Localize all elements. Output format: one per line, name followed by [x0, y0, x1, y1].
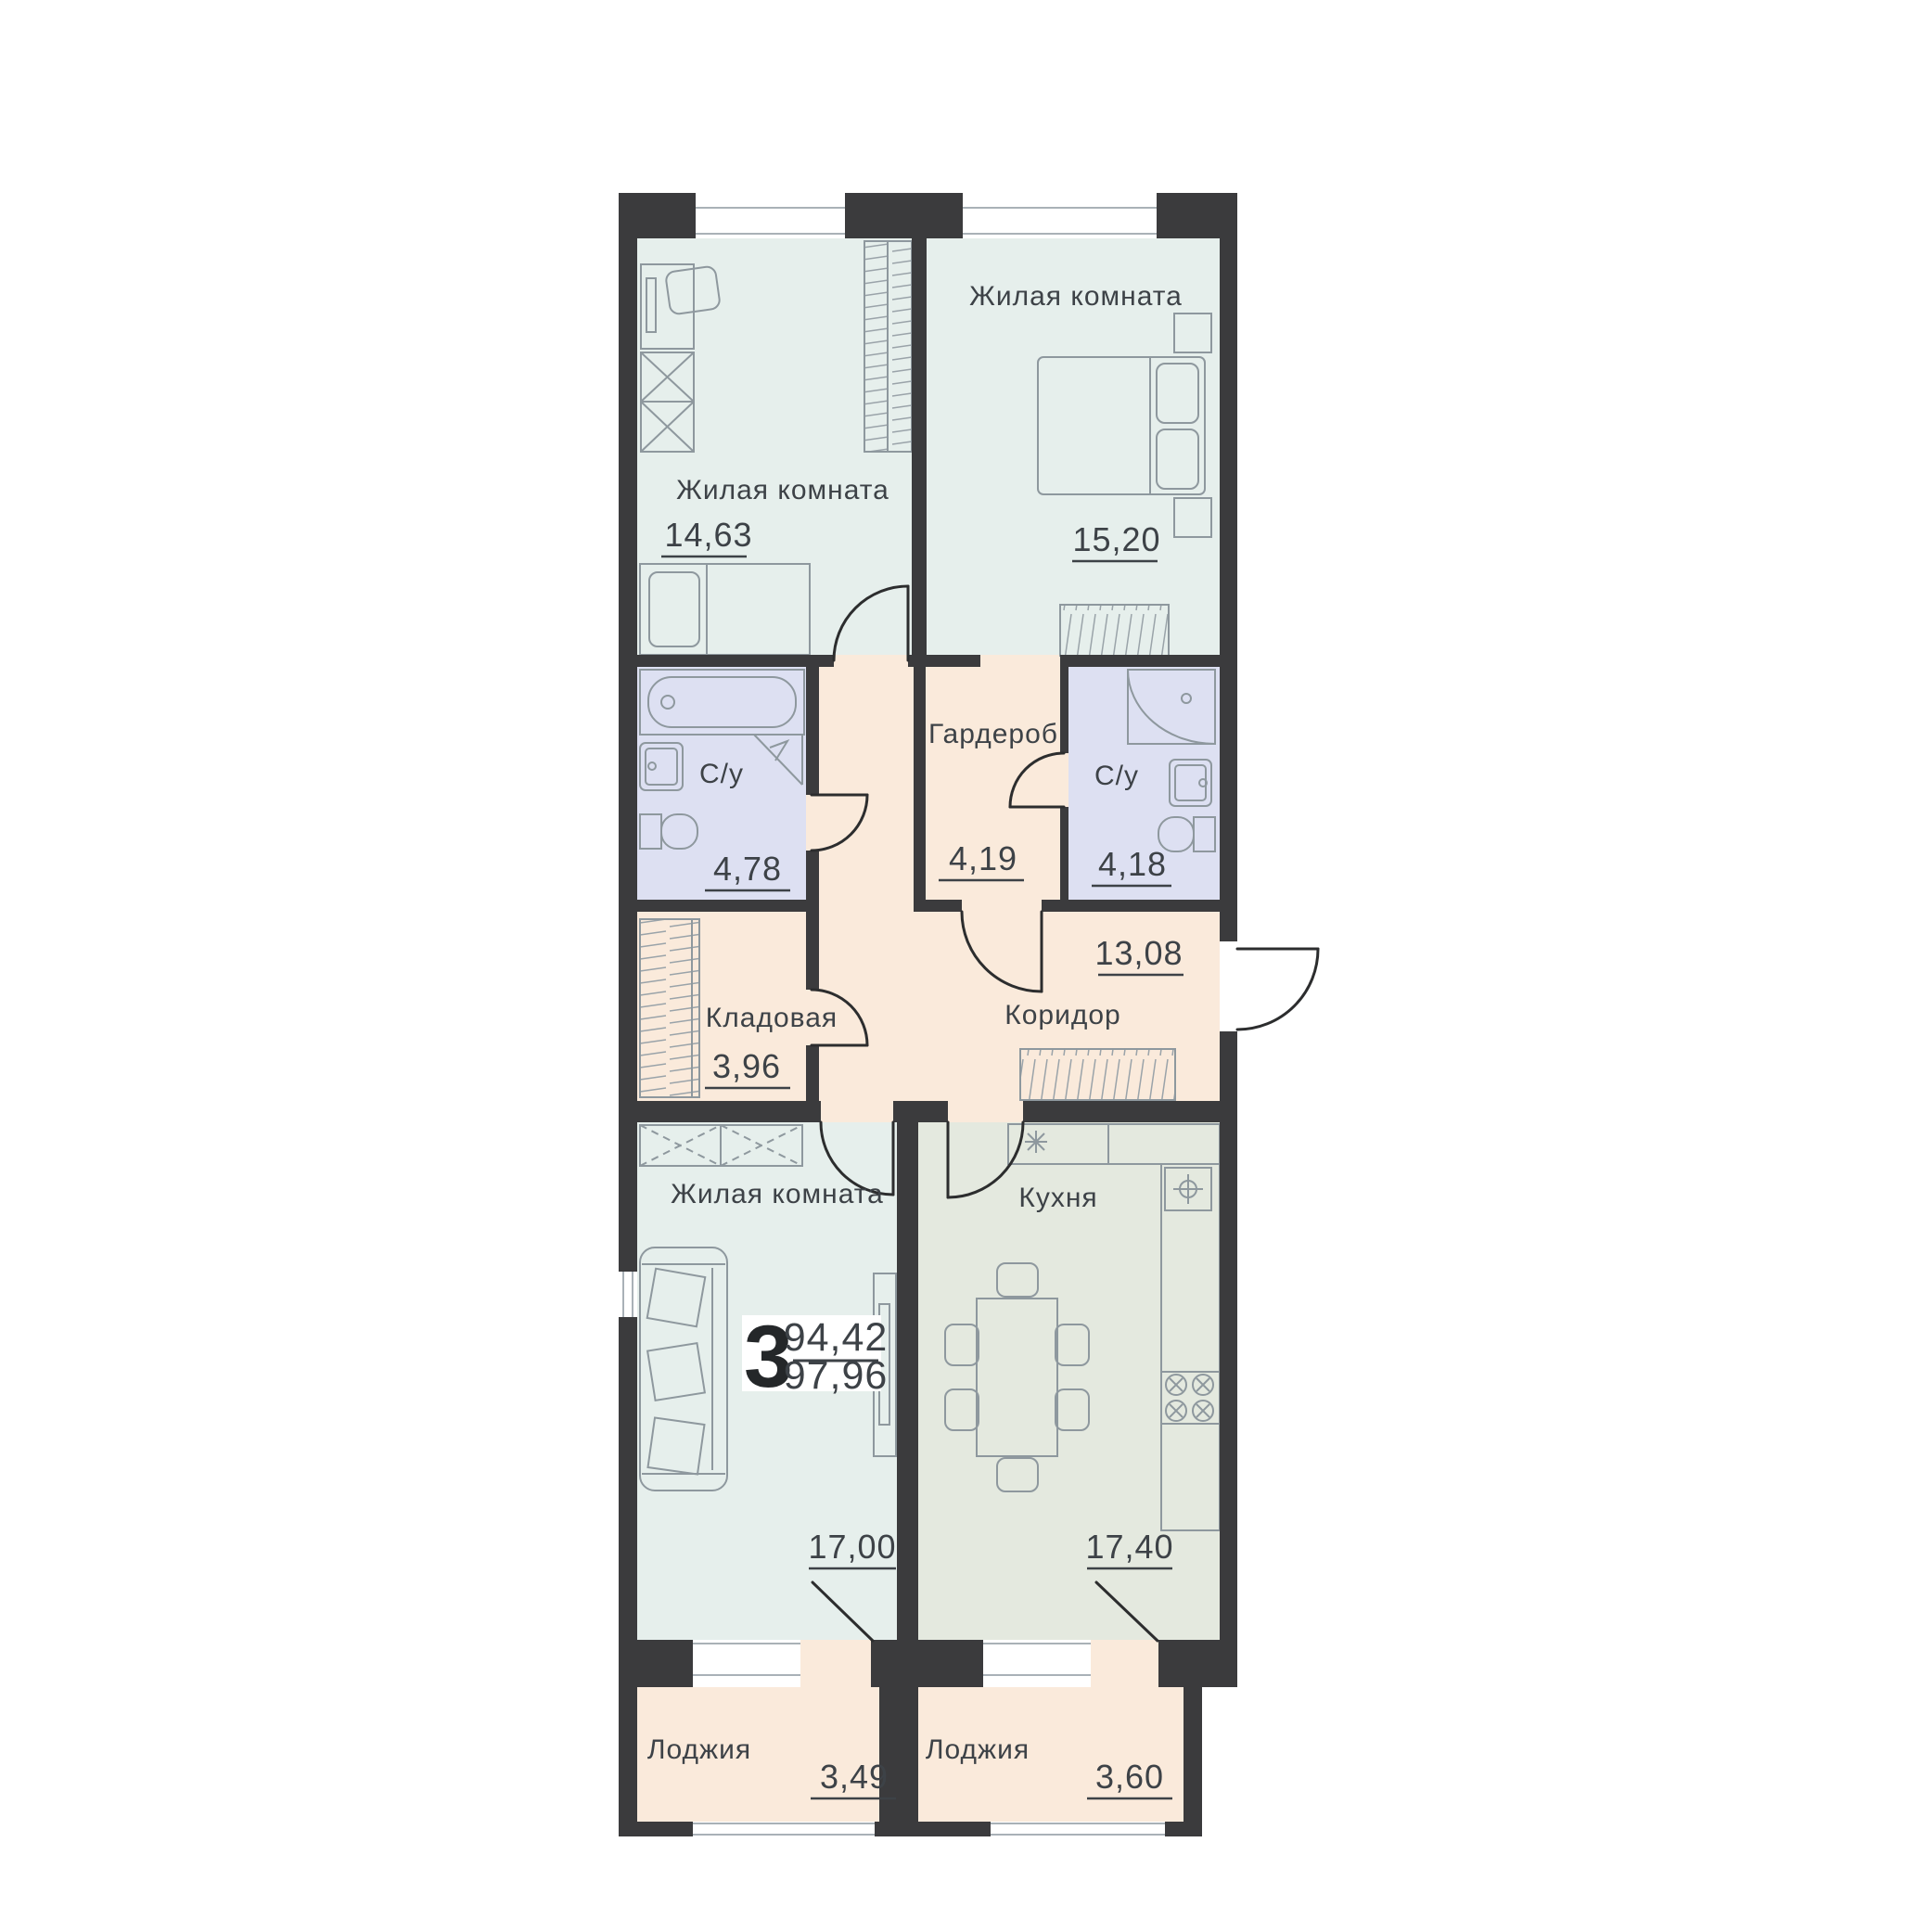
- wall-segment: [1060, 655, 1220, 667]
- room-area: 14,63: [664, 516, 752, 554]
- wall-segment: [806, 1045, 819, 1101]
- window: [983, 1640, 1091, 1687]
- room-label: Гардероб: [928, 719, 1058, 749]
- wall-segment: [845, 193, 963, 238]
- wall-segment: [637, 655, 834, 667]
- room-area: 3,49: [820, 1758, 889, 1796]
- opening-bath1: [806, 795, 819, 851]
- window: [619, 1272, 637, 1317]
- loggia-window: [991, 1822, 1165, 1836]
- floor-plan-page: Жилая комната 14,63 Жилая комната 15,20 …: [0, 0, 1932, 1932]
- room-label: С/у: [1094, 761, 1139, 791]
- floor-plan-drawing: Жилая комната 14,63 Жилая комната 15,20 …: [0, 0, 1932, 1932]
- window: [693, 1640, 800, 1687]
- wardrobe-hatched-icon: [864, 241, 912, 452]
- wall-segment: [1220, 1031, 1237, 1640]
- area-lower: 97,96: [784, 1353, 889, 1398]
- wall-segment: [1042, 900, 1220, 912]
- wall-segment: [912, 238, 927, 667]
- wall-segment: [619, 1640, 693, 1687]
- wall-segment: [1184, 1687, 1202, 1836]
- wall-segment: [897, 1122, 918, 1640]
- loggia-window: [693, 1822, 875, 1836]
- wall-segment: [1060, 807, 1068, 904]
- wall-segment: [637, 900, 819, 912]
- wall-segment: [914, 667, 926, 912]
- room-label: Кладовая: [706, 1003, 838, 1033]
- room-label: Кухня: [1018, 1183, 1097, 1213]
- wall-segment: [875, 1822, 918, 1836]
- room-area: 3,96: [712, 1047, 781, 1085]
- room-label: Жилая комната: [969, 281, 1183, 312]
- wall-segment: [619, 193, 696, 238]
- wall-segment: [871, 1640, 983, 1687]
- window: [696, 193, 845, 238]
- room-area: 17,40: [1085, 1528, 1173, 1566]
- wall-segment: [1158, 1640, 1237, 1687]
- hall-wardrobe-hatched-icon: [1020, 1049, 1175, 1100]
- room-area: 17,00: [808, 1528, 896, 1566]
- wall-segment: [1165, 1822, 1202, 1836]
- room-label: Лоджия: [926, 1734, 1030, 1765]
- room-area: 4,18: [1098, 845, 1167, 883]
- room-label: Лоджия: [647, 1734, 751, 1765]
- wall-segment: [619, 1101, 821, 1122]
- room-area: 4,19: [949, 839, 1017, 877]
- radiator-hatched-icon: [1060, 605, 1169, 656]
- wall-segment: [1023, 1101, 1237, 1122]
- wall-segment: [619, 1822, 693, 1836]
- window: [963, 193, 1157, 238]
- room-area: 3,60: [1095, 1758, 1164, 1796]
- wall-segment: [806, 667, 819, 795]
- wall-segment: [1157, 193, 1237, 238]
- wall-segment: [926, 900, 962, 912]
- room-label: Жилая комната: [671, 1179, 884, 1209]
- entrance-door: [1237, 949, 1318, 1030]
- room-label: С/у: [699, 759, 744, 789]
- room-label: Коридор: [1004, 1000, 1120, 1030]
- opening-bath2: [1060, 753, 1068, 807]
- wall-segment: [918, 1822, 991, 1836]
- wall-segment: [806, 851, 819, 990]
- opening-balcony2: [1091, 1640, 1158, 1687]
- opening-balcony1: [800, 1640, 871, 1687]
- opening-wardrobe: [962, 900, 1042, 912]
- room-area: 13,08: [1094, 934, 1183, 972]
- corridor-strip-floor: [819, 655, 926, 912]
- opening-kitchen: [948, 1101, 1023, 1122]
- room-area: 4,78: [713, 850, 782, 888]
- summary-box: 3 94,42 97,96: [742, 1308, 888, 1406]
- room-area: 15,20: [1072, 520, 1160, 558]
- shelving-hatched-icon: [640, 919, 699, 1097]
- wall-segment: [1060, 667, 1068, 753]
- wall-segment: [893, 1101, 948, 1122]
- room-label: Жилая комната: [676, 475, 889, 505]
- wall-segment: [1220, 238, 1237, 941]
- wall-segment: [619, 1317, 637, 1836]
- opening-living3: [821, 1101, 893, 1122]
- vent-symbol-icon: [1025, 1131, 1047, 1153]
